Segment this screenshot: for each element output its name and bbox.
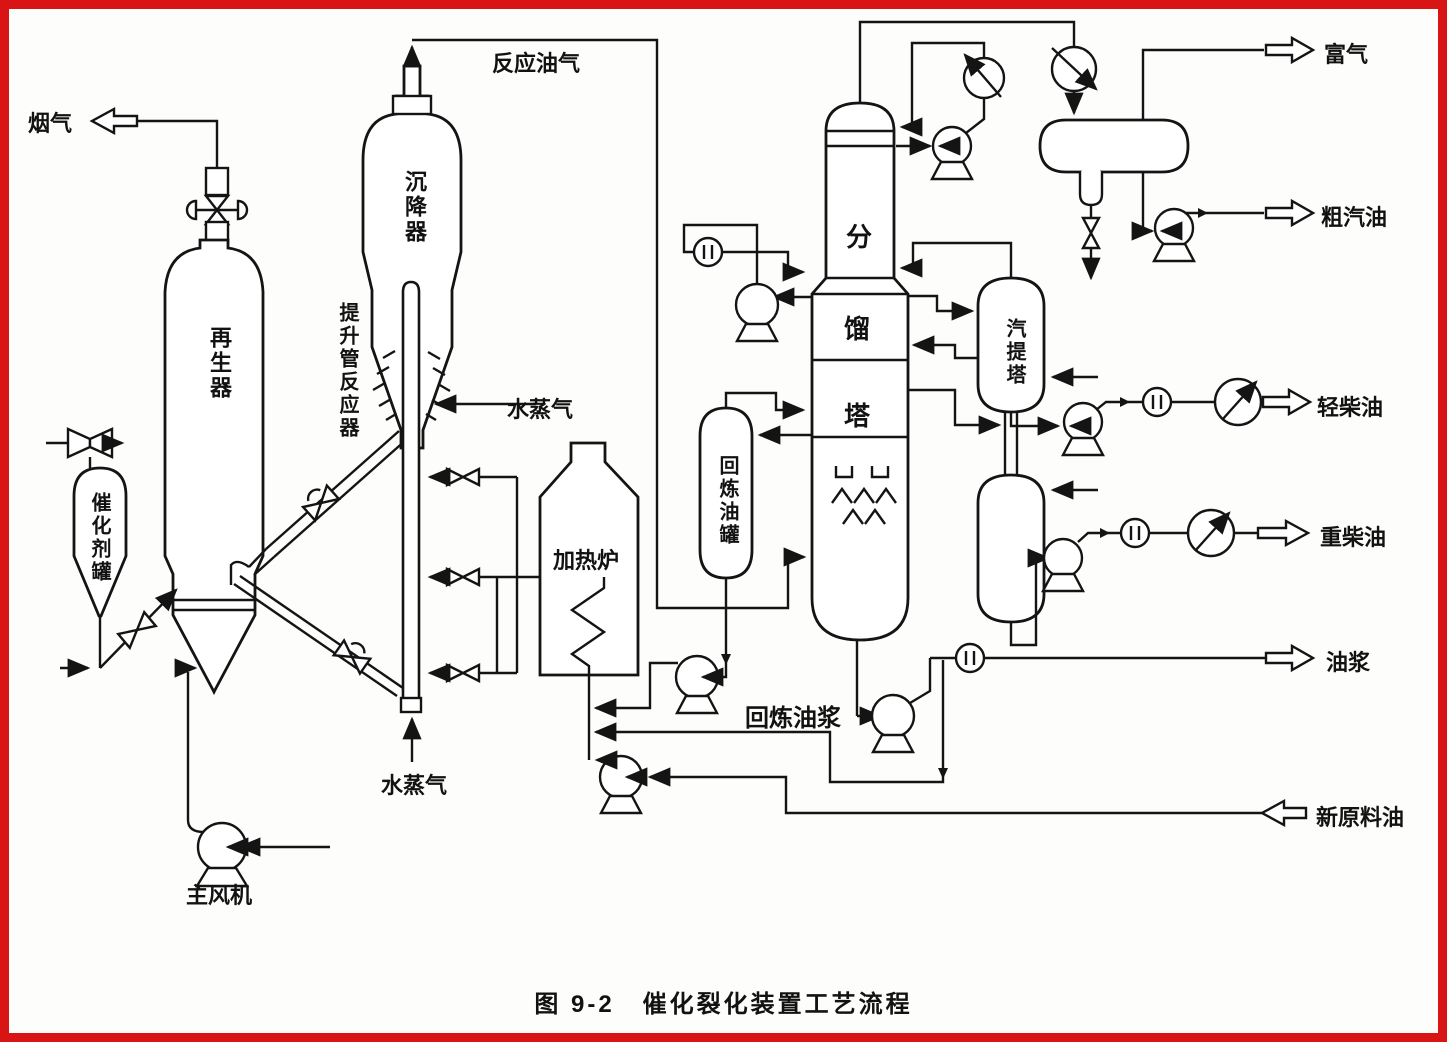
flue-gas-line <box>92 109 217 168</box>
label-reaction-oil-gas: 反应油气 <box>492 46 580 78</box>
mid-pumparound <box>684 225 812 341</box>
heavy-diesel-line <box>1011 510 1308 645</box>
rich-gas-line <box>1143 38 1313 120</box>
label-fractionator-middle: 馏 <box>844 309 870 346</box>
light-diesel-outlet-arrow <box>1263 390 1310 414</box>
label-settler: 沉降器 <box>398 170 430 245</box>
exchanger-heavy-diesel <box>1121 519 1149 547</box>
exchanger-mid <box>694 238 722 266</box>
pump-gasoline <box>1155 209 1193 247</box>
label-stripper: 汽提塔 <box>1000 318 1029 387</box>
label-fractionator-top: 分 <box>846 217 872 254</box>
vessel-regenerator <box>165 240 263 692</box>
pump-heavy-diesel <box>1044 539 1082 577</box>
vessel-fractionator <box>812 103 908 640</box>
crude-gasoline-line <box>1143 172 1313 261</box>
pump-slurry <box>872 695 914 737</box>
label-fractionator-bottom: 塔 <box>844 396 870 433</box>
fresh-feed-line <box>597 756 1306 825</box>
label-heating-furnace: 加热炉 <box>553 543 619 575</box>
process-flow-diagram: 烟气 再生器 催化剂罐 主风机 沉降器 提升管反应器 反应油气 水蒸气 水蒸气 … <box>0 0 1447 1042</box>
ejector-horn-right <box>90 429 112 457</box>
caption-number: 图 9-2 <box>534 991 614 1018</box>
label-recycle-slurry: 回炼油浆 <box>745 698 841 733</box>
top-pumparound <box>896 43 1004 179</box>
label-steam-bottom: 水蒸气 <box>381 768 447 800</box>
label-fresh-feed: 新原料油 <box>1316 800 1404 832</box>
heavy-diesel-outlet-arrow <box>1258 521 1308 545</box>
label-recycle-oil-tank: 回炼油罐 <box>713 455 742 547</box>
label-regenerator: 再生器 <box>203 326 235 401</box>
pump-main-blower <box>188 668 330 886</box>
label-flue-gas: 烟气 <box>28 106 72 138</box>
ejector-horn-left <box>68 429 90 457</box>
light-diesel-line <box>1011 379 1310 455</box>
label-rich-gas: 富气 <box>1324 37 1368 69</box>
flue-gas-valve <box>187 168 247 242</box>
label-riser-reactor: 提升管反应器 <box>333 302 362 440</box>
regenerated-catalyst-standpipe <box>234 576 403 696</box>
pump-mid-reflux <box>736 284 778 326</box>
rich-gas-outlet-arrow <box>1266 38 1313 62</box>
label-steam-top: 水蒸气 <box>507 392 573 424</box>
catalyst-transfer-line <box>60 590 176 668</box>
fresh-feed-inlet-arrow <box>1262 801 1306 825</box>
catalyst-valve <box>118 612 156 648</box>
drum-boot <box>1080 171 1102 205</box>
label-heavy-diesel: 重柴油 <box>1320 520 1386 552</box>
label-crude-gasoline: 粗汽油 <box>1321 200 1387 232</box>
vessel-stripper-lower <box>978 475 1044 622</box>
figure-caption: 图 9-2催化裂化装置工艺流程 <box>0 984 1447 1019</box>
label-main-blower: 主风机 <box>186 878 252 910</box>
flue-gas-outlet-arrow <box>92 109 137 133</box>
label-light-diesel: 轻柴油 <box>1317 390 1383 422</box>
slurry-line <box>857 640 1313 752</box>
exchanger-slurry <box>956 644 984 672</box>
caption-title: 催化裂化装置工艺流程 <box>643 991 913 1018</box>
label-oil-slurry: 油浆 <box>1326 645 1370 677</box>
label-catalyst-tank: 催化剂罐 <box>85 492 114 584</box>
exchanger-light-diesel <box>1143 388 1171 416</box>
crude-gasoline-outlet-arrow <box>1266 201 1313 225</box>
pump-top-reflux <box>933 127 971 165</box>
oil-slurry-outlet-arrow <box>1266 646 1313 670</box>
